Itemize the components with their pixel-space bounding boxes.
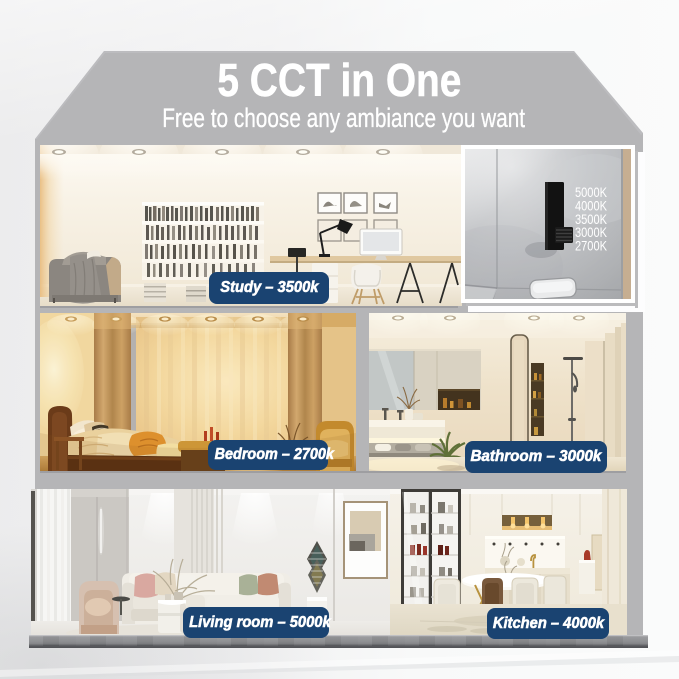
svg-text:2700K: 2700K <box>575 239 607 254</box>
